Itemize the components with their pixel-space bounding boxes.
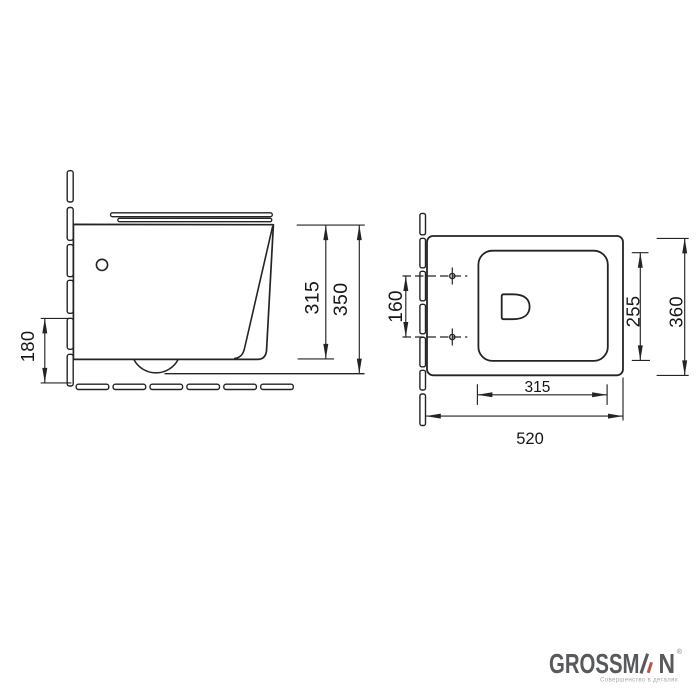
svg-text:520: 520 xyxy=(516,430,544,448)
svg-text:N: N xyxy=(659,648,676,679)
svg-text:350: 350 xyxy=(330,283,352,317)
svg-text:GROSSM: GROSSM xyxy=(549,648,640,679)
svg-text:180: 180 xyxy=(17,331,38,363)
svg-text:®: ® xyxy=(677,648,683,656)
svg-text:255: 255 xyxy=(623,296,644,328)
svg-text:315: 315 xyxy=(302,281,324,315)
svg-text:315: 315 xyxy=(524,379,550,396)
svg-text:160: 160 xyxy=(386,290,407,323)
svg-text:Совершенство в деталях: Совершенство в деталях xyxy=(600,677,679,684)
svg-text:360: 360 xyxy=(666,296,687,328)
